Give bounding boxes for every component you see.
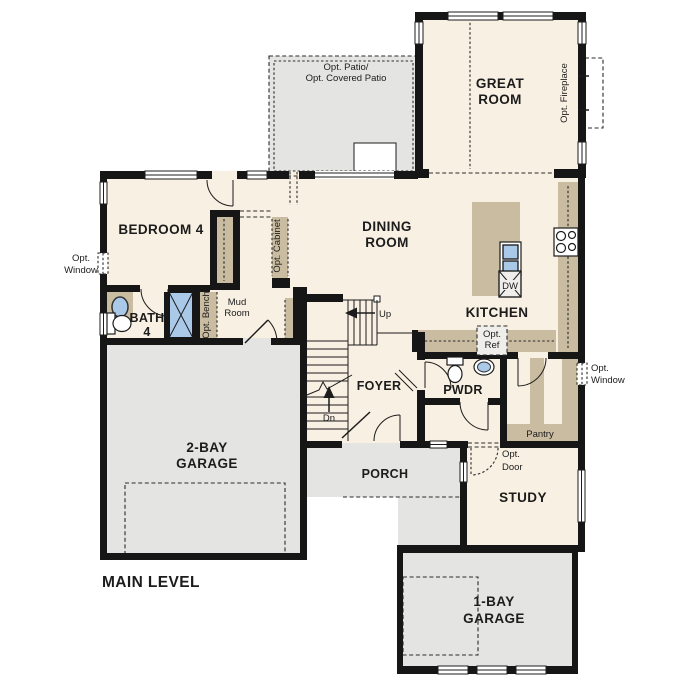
label-great-room-1: GREAT: [476, 76, 525, 91]
label-opt-ref-1: Opt.: [483, 329, 501, 340]
label-opt-cabinet: Opt. Cabinet: [272, 219, 283, 273]
window-bath-left: [100, 313, 107, 335]
label-opt-window-left-1: Opt.: [72, 253, 90, 264]
window-study-porch: [460, 462, 467, 482]
label-mud-room-2: Room: [224, 308, 249, 319]
label-pwdr: PWDR: [443, 383, 482, 397]
island-sink: [500, 242, 521, 275]
label-2bay-garage-2: GARAGE: [176, 456, 238, 471]
label-bath-4-1: BATH: [130, 311, 165, 325]
label-dining-room-2: ROOM: [365, 235, 409, 250]
label-kitchen: KITCHEN: [466, 305, 529, 320]
dishwasher-label: DW: [502, 281, 518, 292]
window-garage1-1: [438, 666, 468, 674]
label-2bay-garage-1: 2-BAY: [186, 440, 227, 455]
label-study: STUDY: [499, 490, 547, 505]
label-opt-window-right-2: Window: [591, 375, 625, 386]
shower: [169, 292, 193, 338]
sliding-door-patio: [312, 171, 397, 179]
window-hall-top: [247, 171, 267, 179]
window-entry-sidelight: [430, 441, 447, 448]
window-greatroom-right-1: [578, 22, 586, 44]
window-greatroom-left: [415, 22, 423, 44]
window-greatroom-top-2: [503, 12, 553, 20]
powder-sink: [474, 359, 494, 375]
opt-window-right-symbol: [577, 363, 587, 385]
mudroom-cabinet: [285, 298, 293, 340]
window-bedroom-top: [145, 171, 197, 179]
label-opt-patio-2: Opt. Covered Patio: [306, 73, 387, 84]
label-opt-window-left-2: Window: [64, 265, 98, 276]
label-opt-fireplace: Opt. Fireplace: [559, 63, 570, 123]
label-porch: PORCH: [362, 467, 409, 481]
window-garage1-3: [516, 666, 546, 674]
label-opt-window-right-1: Opt.: [591, 363, 609, 374]
pantry-shelf-right: [562, 358, 578, 424]
label-1bay-garage-1: 1-BAY: [473, 594, 514, 609]
label-dn: Dn: [323, 413, 335, 424]
label-main-level: MAIN LEVEL: [102, 574, 200, 591]
label-up: Up: [379, 309, 391, 320]
bedroom-closet: [217, 217, 233, 283]
label-1bay-garage-2: GARAGE: [463, 611, 525, 626]
pantry-shelf-left: [530, 358, 544, 424]
label-opt-bench: Opt. Bench: [201, 291, 212, 339]
cooktop: [554, 228, 578, 256]
label-mud-room-1: Mud: [228, 297, 246, 308]
window-bedroom-left: [100, 182, 107, 204]
opt-window-left-symbol: [98, 253, 108, 274]
label-bath-4-2: 4: [143, 325, 150, 339]
label-opt-door-2: Door: [502, 462, 523, 473]
dishwasher: DW: [499, 271, 521, 297]
label-dining-room-1: DINING: [362, 219, 412, 234]
label-opt-patio-1: Opt. Patio/: [324, 62, 369, 73]
floor-plan-page: DW Opt. Patio/ Opt. Covered Patio GREAT …: [0, 0, 687, 687]
label-foyer: FOYER: [357, 379, 402, 393]
window-study-right: [578, 470, 585, 522]
label-bedroom-4: BEDROOM 4: [118, 222, 203, 237]
label-opt-door-1: Opt.: [502, 449, 520, 460]
opt-fireplace-outline: [585, 58, 603, 128]
powder-toilet: [447, 357, 463, 383]
floor-plan-svg: DW Opt. Patio/ Opt. Covered Patio GREAT …: [0, 0, 687, 687]
window-greatroom-top-1: [448, 12, 498, 20]
window-garage1-2: [477, 666, 507, 674]
label-great-room-2: ROOM: [478, 92, 522, 107]
porch-walkway: [398, 497, 460, 546]
label-pantry: Pantry: [526, 429, 554, 440]
label-opt-ref-2: Ref: [485, 340, 500, 351]
window-greatroom-right-2: [578, 142, 586, 164]
